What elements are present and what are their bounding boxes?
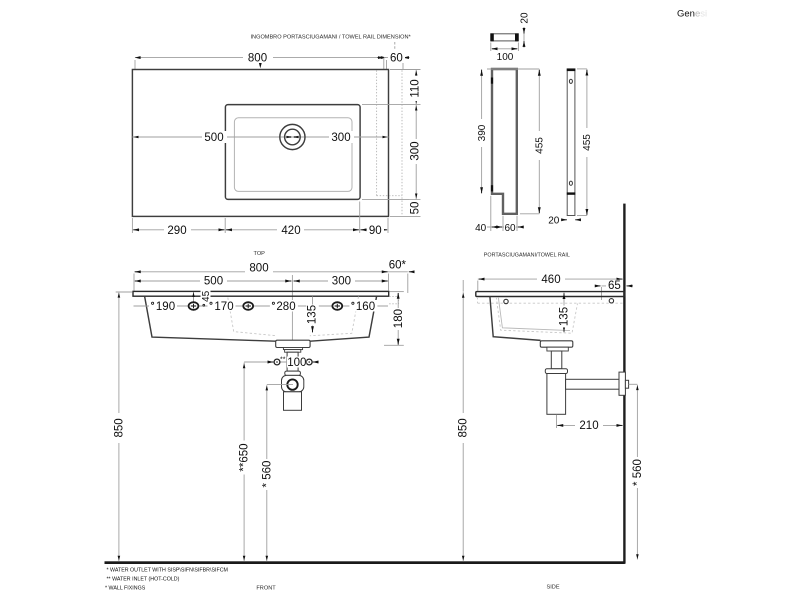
svg-text:850: 850: [113, 418, 125, 437]
svg-text:90: 90: [369, 225, 382, 237]
svg-text:190: 190: [156, 301, 175, 313]
svg-text:290: 290: [167, 225, 186, 237]
svg-text:390: 390: [477, 124, 488, 141]
svg-text:60: 60: [504, 223, 516, 234]
svg-text:850: 850: [458, 418, 470, 437]
svg-text:TOP: TOP: [254, 251, 266, 257]
svg-text:300: 300: [410, 141, 422, 160]
svg-text:280: 280: [276, 301, 295, 313]
svg-text:210: 210: [579, 420, 598, 432]
svg-text:135: 135: [307, 305, 319, 324]
svg-text:170: 170: [214, 301, 233, 313]
svg-text:20: 20: [519, 12, 530, 24]
svg-text:20: 20: [548, 216, 560, 227]
svg-text:* WATER OUTLET WITH SISP\SIFN: * WATER OUTLET WITH SISP\SIFN\SIFBR\SIFC…: [107, 568, 228, 574]
svg-text:300: 300: [331, 132, 350, 144]
svg-text:60*: 60*: [389, 259, 407, 271]
svg-text:460: 460: [541, 274, 560, 286]
svg-text:500: 500: [204, 275, 223, 287]
svg-text:65: 65: [608, 280, 621, 292]
svg-text:SIDE: SIDE: [547, 585, 560, 591]
svg-text:**: **: [280, 357, 286, 364]
svg-text:420: 420: [281, 225, 300, 237]
svg-text:INGOMBRO PORTASCIUGAMANI / TOW: INGOMBRO PORTASCIUGAMANI / TOWEL RAIL DI…: [251, 35, 412, 41]
svg-text:135: 135: [559, 307, 571, 326]
svg-text:455: 455: [582, 134, 593, 151]
svg-text:300: 300: [332, 275, 351, 287]
svg-text:60: 60: [390, 52, 403, 64]
svg-text:* WALL FIXINGS: * WALL FIXINGS: [105, 585, 146, 591]
svg-text:* 560: * 560: [632, 459, 644, 486]
svg-text:50: 50: [410, 202, 422, 215]
svg-text:Genesi: Genesi: [677, 9, 707, 20]
svg-text:100: 100: [497, 52, 514, 63]
svg-text:40: 40: [475, 223, 487, 234]
svg-text:**650: **650: [239, 443, 251, 471]
svg-text:500: 500: [204, 132, 223, 144]
svg-text:PORTASCIUGAMANI/TOWEL RAIL: PORTASCIUGAMANI/TOWEL RAIL: [484, 253, 570, 259]
svg-text:110: 110: [410, 79, 422, 97]
svg-text:800: 800: [248, 53, 267, 65]
svg-text:* 560: * 560: [261, 461, 273, 488]
svg-text:160: 160: [356, 301, 375, 313]
svg-text:** WATER INLET (HOT-COLD): ** WATER INLET (HOT-COLD): [107, 577, 180, 583]
svg-text:100: 100: [287, 357, 306, 369]
svg-text:455: 455: [535, 137, 546, 154]
svg-text:180: 180: [393, 309, 405, 328]
svg-text:800: 800: [249, 262, 268, 274]
svg-text:FRONT: FRONT: [256, 585, 276, 591]
